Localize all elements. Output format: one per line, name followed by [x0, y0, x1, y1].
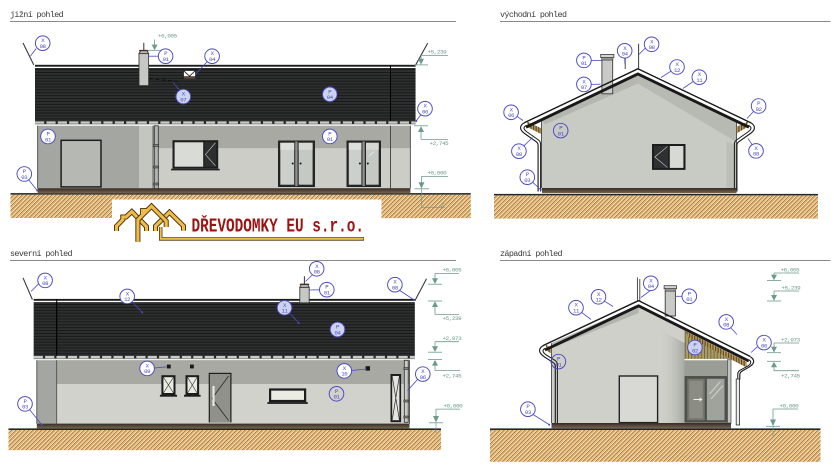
svg-text:východní pohled: východní pohled [500, 10, 567, 20]
svg-text:jižní pohled: jižní pohled [10, 10, 64, 20]
svg-text:+2,745: +2,745 [781, 372, 801, 379]
svg-text:12: 12 [674, 67, 681, 74]
svg-text:+2,973: +2,973 [781, 337, 801, 344]
svg-text:08: 08 [314, 269, 321, 276]
svg-text:03: 03 [22, 404, 29, 411]
svg-text:06: 06 [420, 374, 427, 381]
svg-text:08: 08 [516, 151, 523, 158]
svg-text:DŘEVODOMKY EU s.r.o.: DŘEVODOMKY EU s.r.o. [192, 216, 365, 238]
svg-text:09: 09 [144, 368, 151, 375]
svg-text:01: 01 [555, 361, 562, 368]
svg-text:02: 02 [756, 106, 763, 113]
svg-text:+2,745: +2,745 [430, 140, 450, 147]
svg-text:06: 06 [508, 112, 515, 119]
svg-text:severní pohled: severní pohled [10, 249, 73, 259]
svg-text:04: 04 [622, 51, 629, 58]
svg-text:12: 12 [124, 296, 131, 303]
svg-text:04: 04 [648, 283, 655, 290]
svg-text:+6,005: +6,005 [781, 267, 801, 274]
svg-text:07: 07 [581, 84, 587, 91]
svg-text:07: 07 [180, 96, 186, 103]
svg-text:01: 01 [327, 136, 334, 143]
svg-text:11: 11 [281, 308, 288, 315]
svg-text:+6,005: +6,005 [158, 33, 178, 40]
svg-text:08: 08 [392, 285, 399, 292]
svg-text:+6,005: +6,005 [443, 267, 463, 274]
svg-text:+5,239: +5,239 [428, 49, 448, 56]
svg-text:08: 08 [649, 44, 656, 51]
svg-text:12: 12 [595, 297, 602, 304]
svg-text:+5,239: +5,239 [443, 315, 463, 322]
svg-text:08: 08 [723, 322, 730, 329]
svg-text:03: 03 [525, 409, 532, 416]
svg-text:+0,000: +0,000 [428, 170, 448, 177]
svg-text:01: 01 [558, 130, 565, 137]
svg-text:+0,000: +0,000 [444, 402, 464, 409]
svg-text:+5,239: +5,239 [782, 285, 802, 292]
svg-text:03: 03 [524, 177, 531, 184]
svg-text:08: 08 [42, 280, 49, 287]
svg-text:08: 08 [40, 43, 47, 50]
svg-text:01: 01 [686, 296, 693, 303]
svg-text:03: 03 [21, 174, 28, 181]
svg-text:02: 02 [692, 347, 699, 354]
svg-text:01: 01 [333, 394, 340, 401]
svg-text:+2,745: +2,745 [443, 372, 463, 379]
svg-text:11: 11 [573, 308, 580, 315]
svg-text:04: 04 [209, 56, 216, 63]
svg-text:08: 08 [753, 151, 760, 158]
svg-text:01: 01 [324, 290, 331, 297]
svg-text:01: 01 [581, 60, 588, 67]
svg-text:10: 10 [341, 371, 348, 378]
svg-text:západní pohled: západní pohled [500, 249, 563, 259]
svg-text:04: 04 [327, 94, 334, 101]
svg-text:+2,973: +2,973 [443, 335, 463, 342]
svg-text:+0,000: +0,000 [780, 402, 800, 409]
svg-text:04: 04 [334, 329, 341, 336]
svg-text:06: 06 [422, 109, 429, 116]
svg-text:01: 01 [163, 56, 170, 63]
svg-text:01: 01 [45, 136, 52, 143]
svg-text:06: 06 [761, 342, 768, 349]
svg-text:11: 11 [696, 77, 703, 84]
